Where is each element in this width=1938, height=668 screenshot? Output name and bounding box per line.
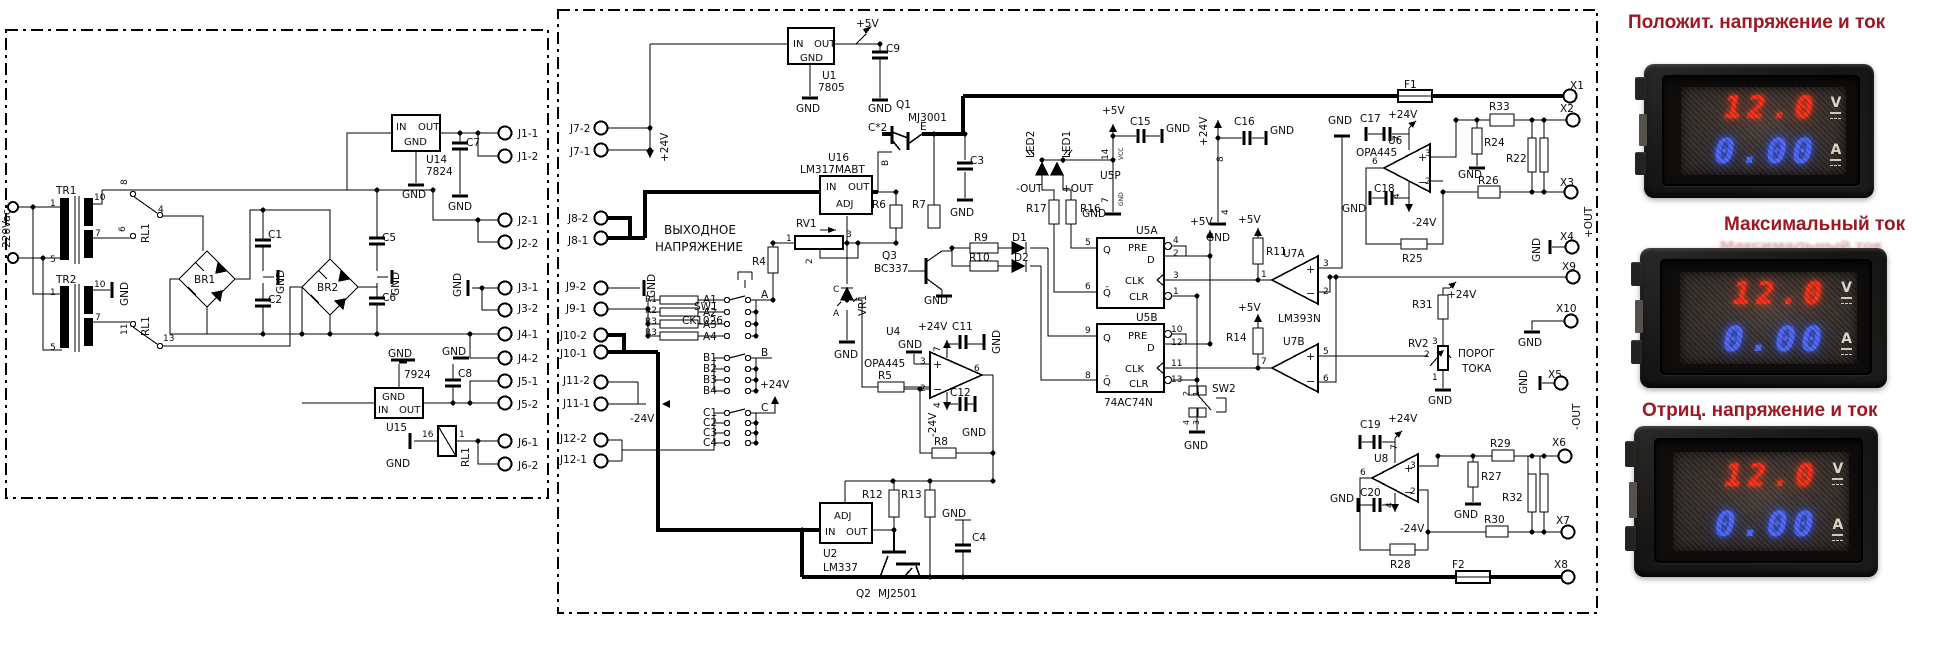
schematic-label: 1 — [50, 288, 56, 298]
schematic-label: U15 — [386, 422, 407, 434]
schematic-label: IN — [396, 122, 406, 133]
schematic-label: 2 — [1173, 249, 1179, 259]
schematic-label: J9-1 — [565, 303, 586, 315]
schematic-label: CLK — [1125, 276, 1145, 287]
schematic-label: +24V — [1447, 289, 1477, 301]
meter-screen: 12.0 0.00 V A — [1681, 87, 1847, 175]
schematic-label: -24V — [927, 412, 939, 437]
schematic-label: -24V — [630, 413, 655, 425]
schematic-label: J8-2 — [567, 213, 588, 225]
schematic-label: GND — [898, 339, 922, 351]
schematic-label: 13 — [163, 334, 174, 344]
mount-tab — [1631, 340, 1642, 364]
schematic-label: + — [1306, 350, 1315, 363]
schematic-label: J5-2 — [517, 399, 538, 411]
schematic-label: C7 — [466, 137, 480, 149]
mount-tab — [1625, 526, 1636, 552]
schematic-label: +5V — [1190, 216, 1213, 228]
schematic-label: +24V — [659, 132, 671, 162]
schematic-label: X1 — [1570, 80, 1584, 92]
schematic-label: GND — [1428, 395, 1452, 407]
schematic-label: TR2 — [55, 274, 76, 286]
schematic-label: 4 — [1385, 502, 1395, 508]
schematic-label: − — [1418, 176, 1427, 189]
schematic-label: X8 — [1554, 559, 1568, 571]
schematic-label: R5 — [878, 370, 892, 382]
schematic-label: 7805 — [818, 82, 845, 94]
schematic-label: J7-1 — [569, 146, 590, 158]
schematic-label: U14 — [426, 154, 447, 166]
schematic-label: BR2 — [317, 282, 338, 294]
schematic-label: OUT — [846, 527, 868, 538]
schematic-label: C8 — [458, 368, 472, 380]
schematic-label: PRE — [1128, 243, 1147, 254]
mount-tab — [1625, 441, 1636, 467]
schematic-label: R33 — [1489, 101, 1510, 113]
schematic-label: +5V — [1102, 105, 1125, 117]
schematic-label: − — [1306, 287, 1315, 300]
schematic-label: GND — [404, 137, 427, 148]
schematic-label: 11 — [120, 324, 130, 335]
schematic-label: X5 — [1548, 369, 1562, 381]
schematic-label: R32 — [1502, 492, 1523, 504]
schematic-label: 13 — [1171, 375, 1182, 385]
schematic-label: GND — [1531, 238, 1543, 262]
caption-positive: Положит. напряжение и ток — [1628, 12, 1885, 34]
schematic-label: C16 — [1234, 116, 1255, 128]
schematic-label: -OUT — [1571, 403, 1583, 430]
caption-max-current-smudge: Максимальный ток — [1720, 239, 1882, 249]
schematic-label: 14 — [1101, 148, 1111, 160]
schematic-label: D — [1147, 255, 1155, 266]
schematic-label: C3 — [970, 155, 984, 167]
schematic-label: R14 — [1226, 332, 1247, 344]
schematic-label: A — [761, 289, 769, 301]
schematic-label: GND — [386, 458, 410, 470]
schematic-label: ПОРОГ — [1458, 348, 1495, 360]
schematic-label: GND — [1166, 123, 1190, 135]
schematic-label: GND — [1518, 337, 1542, 349]
schematic-label: SW2 — [1212, 383, 1236, 395]
schematic-label: U1 — [822, 70, 836, 82]
schematic-label: J2-2 — [517, 238, 538, 250]
schematic-label: 7 — [1392, 135, 1402, 141]
schematic-label: A1 — [703, 294, 717, 306]
schematic-label: J6-2 — [517, 460, 538, 472]
schematic-label: 3 — [920, 357, 926, 367]
schematic-label: C — [761, 402, 768, 414]
schematic-label: R8 — [934, 436, 948, 448]
schematic-label: 7 — [95, 313, 101, 323]
schematic-label: IN — [793, 39, 803, 50]
volt-unit-icon: V — [1830, 96, 1841, 119]
schematic-label: C5 — [382, 232, 396, 244]
schematic-label: U4 — [886, 326, 901, 338]
voltage-readout: 12.0 — [1724, 93, 1819, 124]
schematic-label: Q̄ — [1103, 286, 1111, 299]
schematic-label: D2 — [1014, 252, 1029, 264]
schematic-label: C17 — [1360, 113, 1381, 125]
schematic-label: GND — [924, 295, 948, 307]
schematic-label: Q — [1103, 245, 1111, 256]
schematic-label: R24 — [1484, 137, 1505, 149]
schematic-label: OUT — [848, 182, 870, 193]
schematic-label: 1 — [459, 430, 465, 440]
schematic-label: +24V — [1388, 109, 1418, 121]
schematic-label: U7B — [1283, 336, 1305, 348]
schematic-label: J4-2 — [517, 353, 538, 365]
schematic-label: 6 — [1372, 157, 1378, 167]
transformer-TR2 — [60, 284, 93, 352]
schematic-label: R29 — [1490, 438, 1511, 450]
schematic-label: 74AC74N — [1104, 397, 1153, 409]
schematic-label: C4 — [703, 437, 717, 449]
schematic-label: PRE — [1128, 331, 1147, 342]
schematic-label: 5 — [1085, 238, 1091, 248]
schematic-label: C*2 — [868, 122, 887, 134]
schematic-label: Q3 — [882, 250, 897, 262]
volt-unit-icon: V — [1841, 281, 1852, 304]
caption-negative: Отриц. напряжение и ток — [1642, 400, 1878, 422]
schematic-label: C1 — [268, 229, 282, 241]
meter-screen: 12.0 0.00 V A — [1680, 272, 1858, 364]
transformer-TR1 — [60, 196, 93, 264]
meter-max-current: 12.0 0.00 V A — [1640, 248, 1887, 388]
schematic-label: 3 — [1192, 420, 1201, 425]
schematic-label: A — [833, 309, 840, 319]
mount-tab — [1631, 262, 1642, 286]
schematic-label: -24V — [1400, 523, 1425, 535]
schematic-label: R17 — [1026, 203, 1047, 215]
schematic-label: 10 — [94, 193, 106, 203]
schematic-label: GND — [950, 207, 974, 219]
schematic-label: IN — [825, 527, 835, 538]
meter-negative: 12.0 0.00 V A — [1634, 426, 1878, 577]
schematic: 220VacTR111075TR211075GND846RL111RL113BR… — [0, 0, 1610, 668]
mount-tab — [1635, 152, 1646, 175]
schematic-label: J6-1 — [517, 437, 538, 449]
schematic-label: Q1 — [896, 99, 911, 111]
schematic-label: J9-2 — [565, 281, 586, 293]
transistor-Q1 — [892, 126, 922, 150]
schematic-label: D — [1147, 343, 1155, 354]
caption-max-current: Максимальный ток — [1724, 214, 1905, 236]
schematic-label: J4-1 — [517, 329, 538, 341]
schematic-label: GND — [1328, 115, 1352, 127]
schematic-label: GND — [452, 273, 464, 297]
schematic-label: -24V — [1412, 217, 1437, 229]
schematic-label: C6 — [382, 292, 396, 304]
schematic-label: R3 — [645, 317, 657, 327]
schematic-label: 7 — [933, 346, 943, 352]
schematic-label: OUT — [814, 39, 836, 50]
schematic-label: 12 — [1171, 338, 1182, 348]
schematic-label: J3-2 — [517, 303, 538, 315]
schematic-label: B — [761, 347, 768, 359]
schematic-label: J12-1 — [559, 454, 587, 466]
schematic-label: J3-1 — [517, 282, 538, 294]
schematic-label: R26 — [1478, 175, 1499, 187]
mount-tab — [1635, 77, 1646, 100]
schematic-label: CLR — [1129, 379, 1149, 390]
schematic-label: + — [1306, 263, 1315, 276]
schematic-label: IN — [378, 405, 388, 416]
schematic-label: VCC — [1118, 148, 1125, 160]
current-readout: 0.00 — [1723, 323, 1827, 358]
schematic-label: GND — [962, 427, 986, 439]
schematic-label: Q̄ — [1103, 375, 1111, 388]
schematic-label: 2 — [1424, 350, 1430, 360]
schematic-label: 11 — [1171, 359, 1182, 369]
amp-unit-icon: A — [1830, 143, 1841, 166]
schematic-label: 10 — [94, 280, 106, 290]
schematic-label: J1-2 — [517, 151, 538, 163]
schematic-label: R7 — [912, 199, 926, 211]
schematic-label: GND — [402, 189, 426, 201]
schematic-label: R9 — [974, 232, 988, 244]
schematic-label: MJ3001 — [908, 112, 947, 124]
voltage-readout: 12.0 — [1732, 279, 1827, 310]
schematic-label: 9 — [1085, 326, 1091, 336]
mount-clip — [1635, 300, 1643, 334]
schematic-label: R27 — [1481, 471, 1502, 483]
schematic-label: 2 — [1323, 287, 1329, 297]
schematic-label: 10 — [1171, 325, 1183, 335]
schematic-label: GND — [800, 53, 823, 64]
schematic-label: 4 — [1392, 193, 1402, 199]
schematic-label: 8 — [120, 179, 130, 185]
schematic-label: B — [881, 160, 891, 166]
screenshot-root: 220VacTR111075TR211075GND846RL111RL113BR… — [0, 0, 1938, 668]
schematic-label: 3 — [1173, 271, 1179, 281]
schematic-label: +5V — [1238, 214, 1261, 226]
current-readout: 0.00 — [1714, 135, 1818, 170]
schematic-label: J11-2 — [562, 375, 590, 387]
schematic-label: 8 — [1216, 156, 1226, 162]
schematic-label: J5-1 — [517, 376, 538, 388]
schematic-label: GND — [1518, 370, 1530, 394]
schematic-label: RL1 — [460, 447, 472, 467]
schematic-label: +OUT — [1062, 183, 1094, 195]
schematic-label: 6 — [974, 364, 980, 374]
schematic-label: U2 — [823, 548, 837, 560]
schematic-label: C4 — [972, 532, 986, 544]
schematic-label: +24V — [918, 321, 948, 333]
schematic-label: U16 — [828, 152, 849, 164]
schematic-label: J11-1 — [562, 398, 590, 410]
mount-clip — [1639, 114, 1647, 146]
schematic-label: 7 — [1101, 197, 1111, 203]
schematic-label: − — [933, 383, 942, 396]
schematic-label: 7824 — [426, 166, 453, 178]
schematic-label: GND — [942, 508, 966, 520]
schematic-label: LED2 — [1025, 131, 1037, 158]
schematic-label: C18 — [1374, 183, 1395, 195]
schematic-label: -OUT — [1016, 183, 1043, 195]
schematic-label: НАПРЯЖЕНИЕ — [655, 240, 743, 254]
schematic-label: 4 — [1182, 420, 1191, 425]
schematic-label: E — [920, 121, 927, 133]
schematic-label: X10 — [1556, 303, 1577, 315]
schematic-label: X6 — [1552, 437, 1566, 449]
schematic-label: 5 — [50, 255, 56, 265]
schematic-label: R2 — [645, 306, 657, 316]
schematic-label: GND — [1118, 192, 1125, 206]
schematic-label: OPA445 — [864, 358, 905, 370]
schematic-label: R30 — [1484, 514, 1505, 526]
schematic-label: X2 — [1560, 103, 1574, 115]
schematic-label: 6 — [1323, 374, 1329, 384]
schematic-label: TR1 — [55, 185, 76, 197]
schematic-label: R13 — [901, 489, 922, 501]
schematic-label: 7924 — [404, 369, 431, 381]
schematic-label: GND — [1454, 509, 1478, 521]
schematic-label: 4 — [1173, 236, 1179, 246]
schematic-label: 3 — [1432, 337, 1438, 347]
schematic-label: C11 — [952, 321, 973, 333]
schematic-labels: 220VacTR111075TR211075GND846RL111RL113BR… — [1, 18, 1595, 600]
schematic-label: U5B — [1136, 312, 1158, 324]
schematic-label: GND — [834, 349, 858, 361]
schematic-label: BC337 — [874, 263, 908, 275]
schematic-label: +5V — [856, 18, 879, 30]
schematic-label: ТОКА — [1461, 363, 1492, 375]
schematic-label: U8 — [1374, 453, 1388, 465]
schematic-label: 1 — [50, 199, 56, 209]
schematic-label: C — [833, 285, 839, 295]
schematic-label: B4 — [703, 385, 717, 397]
schematic-label: F2 — [1452, 559, 1465, 571]
schematic-label: 6 — [1085, 282, 1091, 292]
mount-clip — [1629, 482, 1637, 518]
schematic-label: GND — [868, 103, 892, 115]
schematic-label: GND — [382, 392, 405, 403]
schematic-label: R4 — [752, 256, 766, 268]
schematic-label: LM393N — [1278, 313, 1321, 325]
schematic-label: ADJ — [834, 511, 852, 522]
schematic-label: A3 — [703, 319, 717, 331]
schematic-label: GND — [448, 201, 472, 213]
schematic-label: 1 — [1432, 373, 1438, 383]
schematic-label: − — [1306, 375, 1315, 388]
schematic-label: R25 — [1402, 253, 1423, 265]
meter-screen: 12.0 0.00 V A — [1673, 452, 1849, 552]
schematic-label: MJ2501 — [878, 588, 917, 600]
schematic-label: RV1 — [796, 218, 817, 230]
schematic-label: J1-1 — [517, 128, 538, 140]
schematic-label: R1 — [645, 295, 657, 305]
schematic-label: R31 — [1412, 299, 1433, 311]
schematic-label: 1 — [1192, 391, 1201, 396]
schematic-label: GND — [119, 282, 131, 306]
schematic-label: ADJ — [836, 199, 854, 210]
psu-board-outline — [6, 30, 548, 498]
schematic-label: LM337 — [823, 562, 858, 574]
transistor-Q2 — [880, 530, 920, 577]
schematic-label: CLK — [1125, 364, 1145, 375]
opamp-triangles — [930, 144, 1430, 502]
voltage-readout: 12.0 — [1724, 461, 1819, 492]
schematic-label: J10-1 — [559, 348, 587, 360]
diodes — [837, 150, 1072, 306]
schematic-label: GND — [442, 346, 466, 358]
schematic-label: + — [933, 358, 942, 371]
schematic-label: C20 — [1360, 487, 1381, 499]
schematic-label: GND — [1184, 440, 1208, 452]
schematic-label: 3 — [846, 230, 852, 240]
schematic-label: 2 — [805, 258, 815, 264]
schematic-label: + — [1418, 151, 1427, 164]
schematic-label: 6 — [118, 226, 128, 232]
schematic-label: ВЫХОДНОЕ — [664, 223, 736, 237]
schematic-label: D1 — [1012, 232, 1027, 244]
schematic-label: R22 — [1506, 153, 1527, 165]
schematic-label: +OUT — [1583, 206, 1595, 238]
schematic-label: J10-2 — [559, 330, 587, 342]
schematic-label: A2 — [703, 307, 717, 319]
schematic-label: 1 — [1261, 270, 1267, 280]
schematic-label: C2 — [268, 294, 282, 306]
schematic-label: +5V — [1238, 302, 1261, 314]
schematic-label: +24V — [1198, 116, 1210, 146]
schematic-label: A4 — [703, 331, 717, 343]
schematic-label: OUT — [418, 122, 440, 133]
schematic-label: C12 — [950, 387, 971, 399]
schematic-label: + — [1404, 462, 1413, 475]
schematic-label: RL1 — [140, 223, 152, 243]
volt-unit-icon: V — [1832, 462, 1843, 485]
schematic-label: 3 — [1323, 259, 1329, 269]
schematic-label: RV2 — [1408, 338, 1429, 350]
schematic-label: − — [1404, 486, 1413, 499]
schematic-label: U5A — [1136, 225, 1158, 237]
schematic-label: X9 — [1562, 261, 1576, 273]
schematic-label: U7A — [1283, 248, 1305, 260]
schematic-label: J2-1 — [517, 215, 538, 227]
schematic-label: GND — [1082, 208, 1106, 220]
amp-unit-icon: A — [1841, 332, 1852, 355]
schematic-label: GND — [1206, 232, 1230, 244]
schematic-label: 7 — [1390, 444, 1400, 450]
schematic-label: BR1 — [194, 274, 215, 286]
schematic-label: R3 — [645, 328, 657, 338]
schematic-label: 8 — [1085, 371, 1091, 381]
schematic-label: C15 — [1130, 116, 1151, 128]
schematic-label: R12 — [862, 489, 883, 501]
schematic-label: CLR — [1129, 292, 1149, 303]
schematic-label: 2 — [1182, 391, 1191, 396]
schematic-label: J12-2 — [559, 433, 587, 445]
schematic-label: 7 — [95, 229, 101, 239]
schematic-label: +24V — [1388, 413, 1418, 425]
schematic-label: R28 — [1390, 559, 1411, 571]
schematic-label: LM317MABT — [800, 164, 865, 176]
schematic-label: X3 — [1560, 177, 1574, 189]
schematic-label: 1 — [1173, 287, 1179, 297]
schematic-label: LED1 — [1061, 131, 1073, 158]
amp-unit-icon: A — [1832, 518, 1843, 541]
schematic-label: Q2 — [856, 588, 871, 600]
schematic-label: 1 — [786, 234, 792, 244]
schematic-label: 7 — [1261, 357, 1267, 367]
schematic-label: F1 — [1404, 79, 1417, 91]
schematic-label: 6 — [1360, 468, 1366, 478]
schematic-label: GND — [1270, 125, 1294, 137]
schematic-label: C9 — [886, 43, 900, 55]
schematic-label: 16 — [422, 430, 434, 440]
schematic-label: 4 — [933, 402, 943, 408]
terminals — [8, 90, 1580, 584]
